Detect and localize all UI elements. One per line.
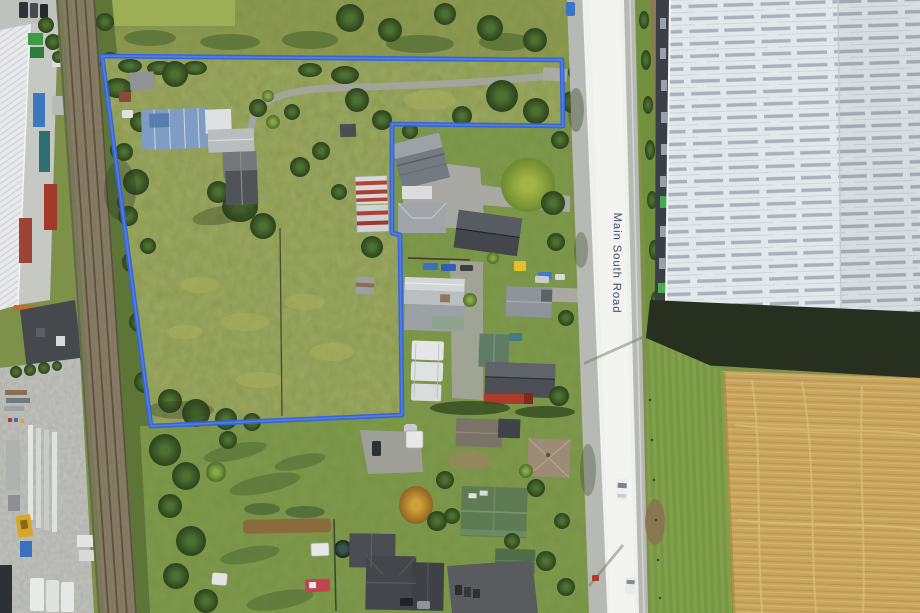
dark-car	[372, 441, 381, 456]
residential-south	[140, 415, 592, 613]
long-sheds	[403, 277, 466, 332]
white-van-on-road	[625, 577, 637, 595]
parked-car	[30, 3, 38, 18]
brown-hedge	[243, 518, 331, 534]
car	[400, 598, 413, 606]
dark-hut	[340, 124, 356, 138]
south-dark-house	[484, 362, 555, 398]
blue-machine	[20, 541, 32, 557]
paddock-shed	[356, 277, 375, 295]
red-truck	[119, 92, 131, 102]
green-roof-villa	[460, 486, 528, 538]
dark-driveway	[447, 560, 538, 613]
green-accent	[660, 196, 667, 208]
small-shed	[130, 71, 155, 90]
teal-car	[509, 333, 522, 341]
parked-car	[40, 4, 48, 18]
caravans	[410, 340, 444, 401]
aerial-scene: Main South Road	[0, 0, 920, 613]
parked-car	[19, 2, 28, 18]
red-object	[592, 575, 599, 581]
yellow-digger	[15, 514, 33, 538]
white-tent	[212, 572, 228, 585]
tan-hip-house	[527, 438, 570, 477]
distribution-warehouse	[646, 0, 920, 378]
driveway-north	[360, 430, 423, 474]
white-caravan	[311, 543, 329, 557]
green-accent	[658, 283, 665, 293]
road-label: Main South Road	[610, 213, 623, 314]
roadside-grass-east	[645, 338, 733, 613]
neighbor-hip-house	[398, 203, 446, 233]
yellow-loader	[514, 261, 526, 271]
industrial-yard-south	[0, 358, 94, 613]
white-car	[122, 110, 133, 118]
neighbor-gray-house	[505, 286, 552, 318]
white-leanto	[402, 186, 432, 199]
dirt-patch	[645, 499, 665, 545]
aerial-photo: Main South Road	[0, 0, 920, 613]
car	[417, 601, 430, 609]
scrub-strip-north	[56, 0, 596, 62]
stubble-field	[723, 371, 920, 613]
white-caravan	[406, 431, 423, 448]
white-car-on-road	[615, 478, 628, 502]
red-play-table	[305, 579, 330, 593]
blue-car-north	[566, 2, 575, 16]
